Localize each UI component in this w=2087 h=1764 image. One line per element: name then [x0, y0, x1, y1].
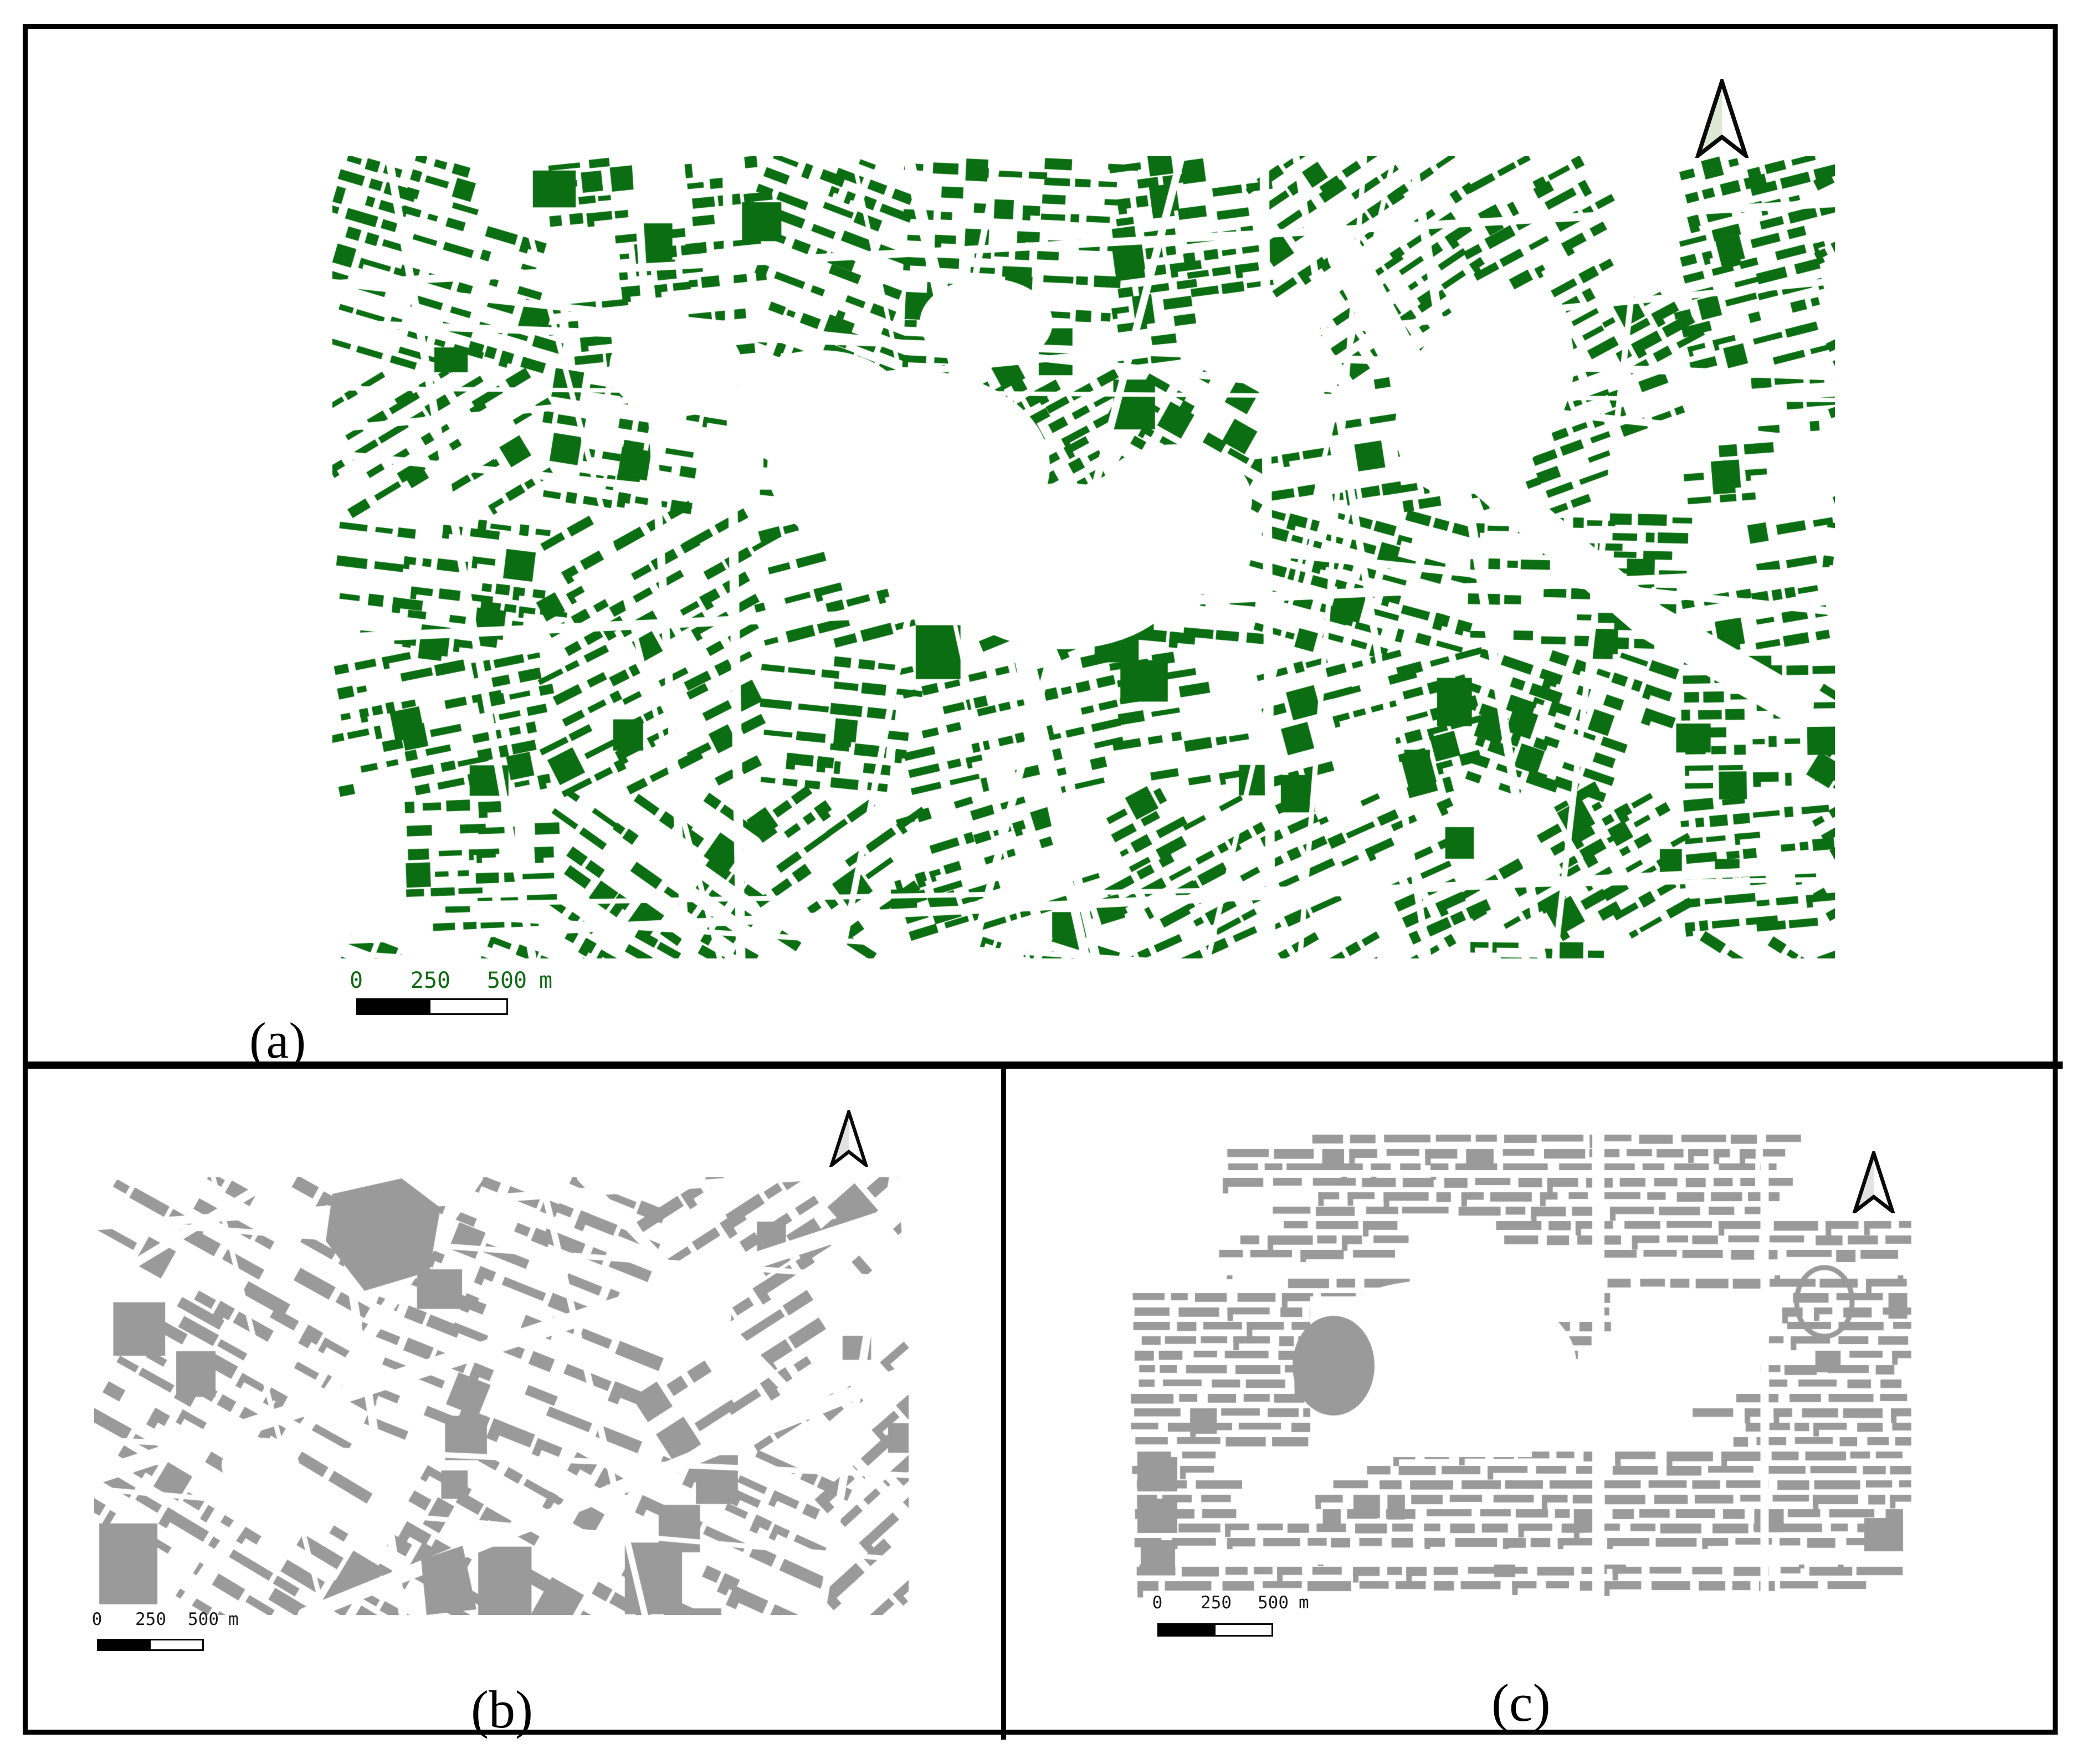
building-footprint-figure: 0 250 500 m (a) 0 250 500 m (b) 0 250 50 — [0, 0, 2087, 1764]
north-arrow-icon — [825, 1110, 873, 1167]
scalebar-bar-filled — [99, 1640, 151, 1649]
panel-divider-vertical — [1001, 1069, 1006, 1740]
scalebar-bar-filled — [358, 1000, 430, 1013]
north-arrow-icon — [1689, 79, 1755, 158]
scalebar-bar-empty — [1216, 1625, 1272, 1635]
panel-a-label: (a) — [249, 1015, 306, 1066]
scalebar-tick-500: 500 — [487, 970, 527, 992]
map-c-buildings — [1127, 1130, 1911, 1598]
map-b-buildings — [94, 1177, 909, 1615]
scalebar-tick-500: 500 — [188, 1611, 219, 1628]
scalebar-bar-empty — [430, 1000, 506, 1013]
scalebar-tick-0: 0 — [1152, 1594, 1163, 1612]
panel-divider-horizontal — [23, 1062, 2063, 1069]
scalebar-bar — [97, 1639, 204, 1651]
panel-c-label: (c) — [1491, 1676, 1551, 1730]
scalebar-unit: m — [539, 970, 552, 992]
north-arrow-icon — [1850, 1151, 1898, 1213]
scalebar-bar — [1157, 1623, 1273, 1637]
scalebar-bar — [356, 998, 508, 1015]
scalebar-bar-filled — [1159, 1625, 1216, 1635]
scalebar-tick-500: 500 — [1258, 1594, 1289, 1612]
scalebar-tick-250: 250 — [135, 1611, 166, 1628]
scalebar-tick-250: 250 — [1201, 1594, 1232, 1612]
scalebar-tick-0: 0 — [350, 970, 363, 992]
scalebar-unit: m — [228, 1611, 239, 1628]
scalebar-unit: m — [1299, 1594, 1309, 1612]
panel-b-label: (b) — [471, 1683, 533, 1736]
scalebar-tick-0: 0 — [92, 1611, 102, 1628]
scalebar-bar-empty — [151, 1640, 203, 1649]
map-a-buildings — [332, 156, 1835, 958]
scalebar-tick-250: 250 — [411, 970, 450, 992]
